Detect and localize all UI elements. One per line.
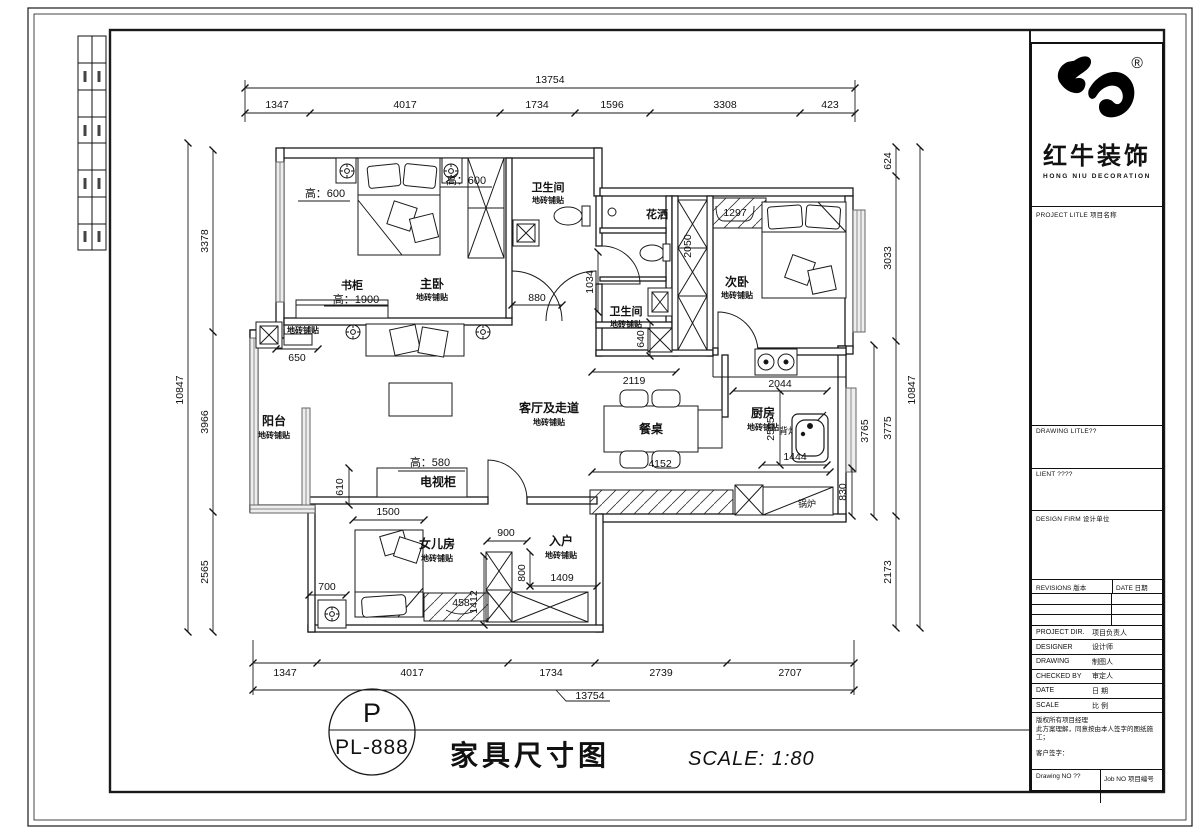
height-label-600b: 高：600 bbox=[446, 173, 486, 187]
title-block: ® 红牛装饰 HONG NIU DECORATION PROJECT LITLE… bbox=[1030, 42, 1164, 792]
notes-line3: 客户签字： bbox=[1036, 750, 1159, 759]
height-label-1900: 高：1900 bbox=[333, 292, 379, 306]
dim-1034: 1034 bbox=[584, 270, 596, 294]
dim-1500: 1500 bbox=[376, 506, 400, 518]
room-label-master: 主卧 bbox=[420, 276, 444, 291]
dim-top-2: 4017 bbox=[393, 99, 417, 111]
drawing-en: DRAWING bbox=[1036, 658, 1092, 665]
dining-table-label: 餐桌 bbox=[639, 421, 664, 436]
revisions-date-label: DATE 日期 bbox=[1112, 580, 1162, 593]
title-block-drawing-title: DRAWING LITLE?? bbox=[1032, 426, 1162, 469]
brand-name-en: HONG NIU DECORATION bbox=[1032, 173, 1162, 180]
room-sub-daughter: 地砖铺贴 bbox=[421, 553, 453, 563]
dim-top-3: 1734 bbox=[525, 99, 549, 111]
sheet-title: 家具尺寸图 bbox=[450, 734, 610, 774]
room-label-second: 次卧 bbox=[725, 274, 749, 289]
bookcase-label: 书柜 bbox=[341, 278, 363, 292]
dim-right-total: 10847 bbox=[906, 375, 918, 404]
dim-bottom-2: 4017 bbox=[400, 667, 424, 679]
scale-en: SCALE bbox=[1036, 702, 1092, 709]
registered-mark: ® bbox=[1131, 55, 1143, 72]
dim-830: 830 bbox=[837, 483, 849, 501]
title-block-client: LIENT ???? bbox=[1032, 469, 1162, 511]
dim-left-3: 2565 bbox=[199, 560, 211, 584]
date-cn: 日 期 bbox=[1092, 686, 1108, 696]
designer-en: DESIGNER bbox=[1036, 644, 1092, 651]
dim-1412: 1412 bbox=[468, 590, 480, 614]
title-block-notes: 版权所有项目经理 此方案理解，同意按由本人签字的图纸施工； 客户签字： bbox=[1032, 713, 1162, 770]
sheet-code: PL-888 bbox=[327, 736, 417, 760]
dim-1297: 1297 bbox=[723, 207, 747, 219]
dim-right-4: 2173 bbox=[882, 560, 894, 584]
dim-bottom-total: 13754 bbox=[575, 690, 604, 702]
row-designer: DESIGNER 设计师 bbox=[1032, 640, 1162, 655]
tile-label: 地砖铺贴 bbox=[287, 325, 319, 335]
drawing-no-label: Drawing NO ?? bbox=[1032, 770, 1100, 803]
dim-bottom-5: 2707 bbox=[778, 667, 802, 679]
dim-2044: 2044 bbox=[768, 378, 792, 390]
checked-by-cn: 审定人 bbox=[1092, 671, 1113, 681]
dim-2050: 2050 bbox=[682, 234, 694, 258]
dim-bottom-1: 1347 bbox=[273, 667, 297, 679]
brand-name-cn: 红牛装饰 bbox=[1032, 136, 1162, 171]
dim-640: 640 bbox=[635, 330, 647, 348]
dim-880: 880 bbox=[528, 292, 546, 304]
room-label-balcony: 阳台 bbox=[262, 413, 286, 428]
dim-right-1: 624 bbox=[882, 152, 894, 170]
room-sub-balcony: 地砖铺贴 bbox=[258, 430, 290, 440]
dim-bottom-3: 1734 bbox=[539, 667, 563, 679]
dim-610: 610 bbox=[334, 478, 346, 496]
room-label-bath1: 卫生间 bbox=[532, 180, 565, 194]
scale-cn: 比 例 bbox=[1092, 701, 1108, 711]
room-sub-living: 地砖铺贴 bbox=[533, 417, 565, 427]
room-label-living: 客厅及走道 bbox=[518, 400, 579, 415]
dim-left-total: 10847 bbox=[174, 375, 186, 404]
room-label-daughter: 女儿房 bbox=[419, 536, 455, 551]
dim-1409: 1409 bbox=[550, 572, 574, 584]
date-en: DATE bbox=[1036, 687, 1092, 694]
hongniu-bull-logo: ® bbox=[1045, 52, 1149, 132]
dim-700: 700 bbox=[318, 581, 336, 593]
floor-plan-canvas: 背灯 主卧 地砖铺贴 卫生间 地砖铺贴 花洒 卫生间 地砖铺贴 次卧 地砖铺贴 … bbox=[0, 0, 1200, 834]
dim-left-1: 3378 bbox=[199, 229, 211, 253]
project-dir-en: PROJECT DIR. bbox=[1036, 629, 1092, 636]
dim-top-6: 423 bbox=[821, 99, 839, 111]
dim-1444: 1444 bbox=[783, 451, 807, 463]
dim-top-5: 3308 bbox=[713, 99, 737, 111]
revision-row bbox=[1032, 605, 1162, 616]
title-block-revisions: REVISIONS 版本 DATE 日期 bbox=[1032, 580, 1162, 626]
room-label-entry: 入户 bbox=[549, 533, 573, 548]
dim-top-total: 13754 bbox=[535, 74, 564, 86]
title-block-project-title: PROJECT LITLE 项目名称 bbox=[1032, 207, 1162, 426]
room-label-bath2: 卫生间 bbox=[610, 304, 643, 318]
design-firm-label: DESIGN FIRM 设计单位 bbox=[1032, 511, 1162, 523]
boiler-label: 锅炉 bbox=[798, 498, 816, 509]
dim-2565: 2565 bbox=[765, 417, 777, 441]
row-scale: SCALE 比 例 bbox=[1032, 699, 1162, 714]
revision-row bbox=[1032, 594, 1162, 605]
notes-line2: 此方案理解，同意按由本人签字的图纸施工； bbox=[1036, 726, 1159, 743]
row-date: DATE 日 期 bbox=[1032, 684, 1162, 699]
title-block-logo-section: ® 红牛装饰 HONG NIU DECORATION bbox=[1032, 52, 1162, 207]
dim-4152: 4152 bbox=[648, 458, 672, 470]
scale-label: SCALE: 1:80 bbox=[688, 748, 815, 771]
dim-right-2: 3033 bbox=[882, 246, 894, 270]
height-label-580: 高：580 bbox=[410, 455, 450, 469]
dim-bottom-4: 2739 bbox=[649, 667, 673, 679]
height-label-600a: 高：600 bbox=[305, 186, 345, 200]
project-dir-cn: 项目负责人 bbox=[1092, 628, 1127, 638]
room-label-shower: 花洒 bbox=[646, 207, 668, 221]
room-sub-bath2: 地砖铺贴 bbox=[610, 319, 642, 329]
title-block-bottom-row: Drawing NO ?? Job NO 项目编号 bbox=[1032, 770, 1162, 803]
project-title-label: PROJECT LITLE 项目名称 bbox=[1032, 207, 1162, 219]
drawing-cn: 制图人 bbox=[1092, 657, 1113, 667]
dim-right-3: 3775 bbox=[882, 416, 894, 440]
drawing-index-strip bbox=[78, 36, 106, 250]
dim-900: 900 bbox=[497, 527, 515, 539]
row-drawing: DRAWING 制图人 bbox=[1032, 655, 1162, 670]
sheet-bubble bbox=[329, 689, 1030, 775]
revisions-label: REVISIONS 版本 bbox=[1032, 582, 1112, 592]
client-label: LIENT ???? bbox=[1032, 469, 1162, 478]
room-sub-entry: 地砖铺贴 bbox=[545, 550, 577, 560]
row-checked-by: CHECKED BY 审定人 bbox=[1032, 670, 1162, 685]
checked-by-en: CHECKED BY bbox=[1036, 673, 1092, 680]
drawing-title-label: DRAWING LITLE?? bbox=[1032, 426, 1162, 435]
room-sub-master: 地砖铺贴 bbox=[416, 292, 448, 302]
job-no-label: Job NO 项目编号 bbox=[1100, 770, 1162, 803]
notes-line1: 版权所有项目经理 bbox=[1036, 717, 1159, 726]
room-sub-second: 地砖铺贴 bbox=[721, 290, 753, 300]
dim-top-1: 1347 bbox=[265, 99, 289, 111]
dim-650: 650 bbox=[288, 352, 306, 364]
dim-3765: 3765 bbox=[859, 419, 871, 443]
dim-800: 800 bbox=[516, 564, 528, 582]
dim-top-4: 1596 bbox=[600, 99, 624, 111]
designer-cn: 设计师 bbox=[1092, 642, 1113, 652]
sheet-letter: P bbox=[342, 698, 402, 729]
furniture bbox=[318, 158, 846, 628]
row-project-dir: PROJECT DIR. 项目负责人 bbox=[1032, 626, 1162, 641]
dim-2119: 2119 bbox=[623, 375, 646, 387]
tv-cabinet-label: 电视柜 bbox=[420, 474, 456, 489]
dim-left-2: 3966 bbox=[199, 410, 211, 434]
title-block-design-firm: DESIGN FIRM 设计单位 bbox=[1032, 511, 1162, 580]
revision-row bbox=[1032, 615, 1162, 626]
room-sub-bath1: 地砖铺贴 bbox=[532, 195, 564, 205]
